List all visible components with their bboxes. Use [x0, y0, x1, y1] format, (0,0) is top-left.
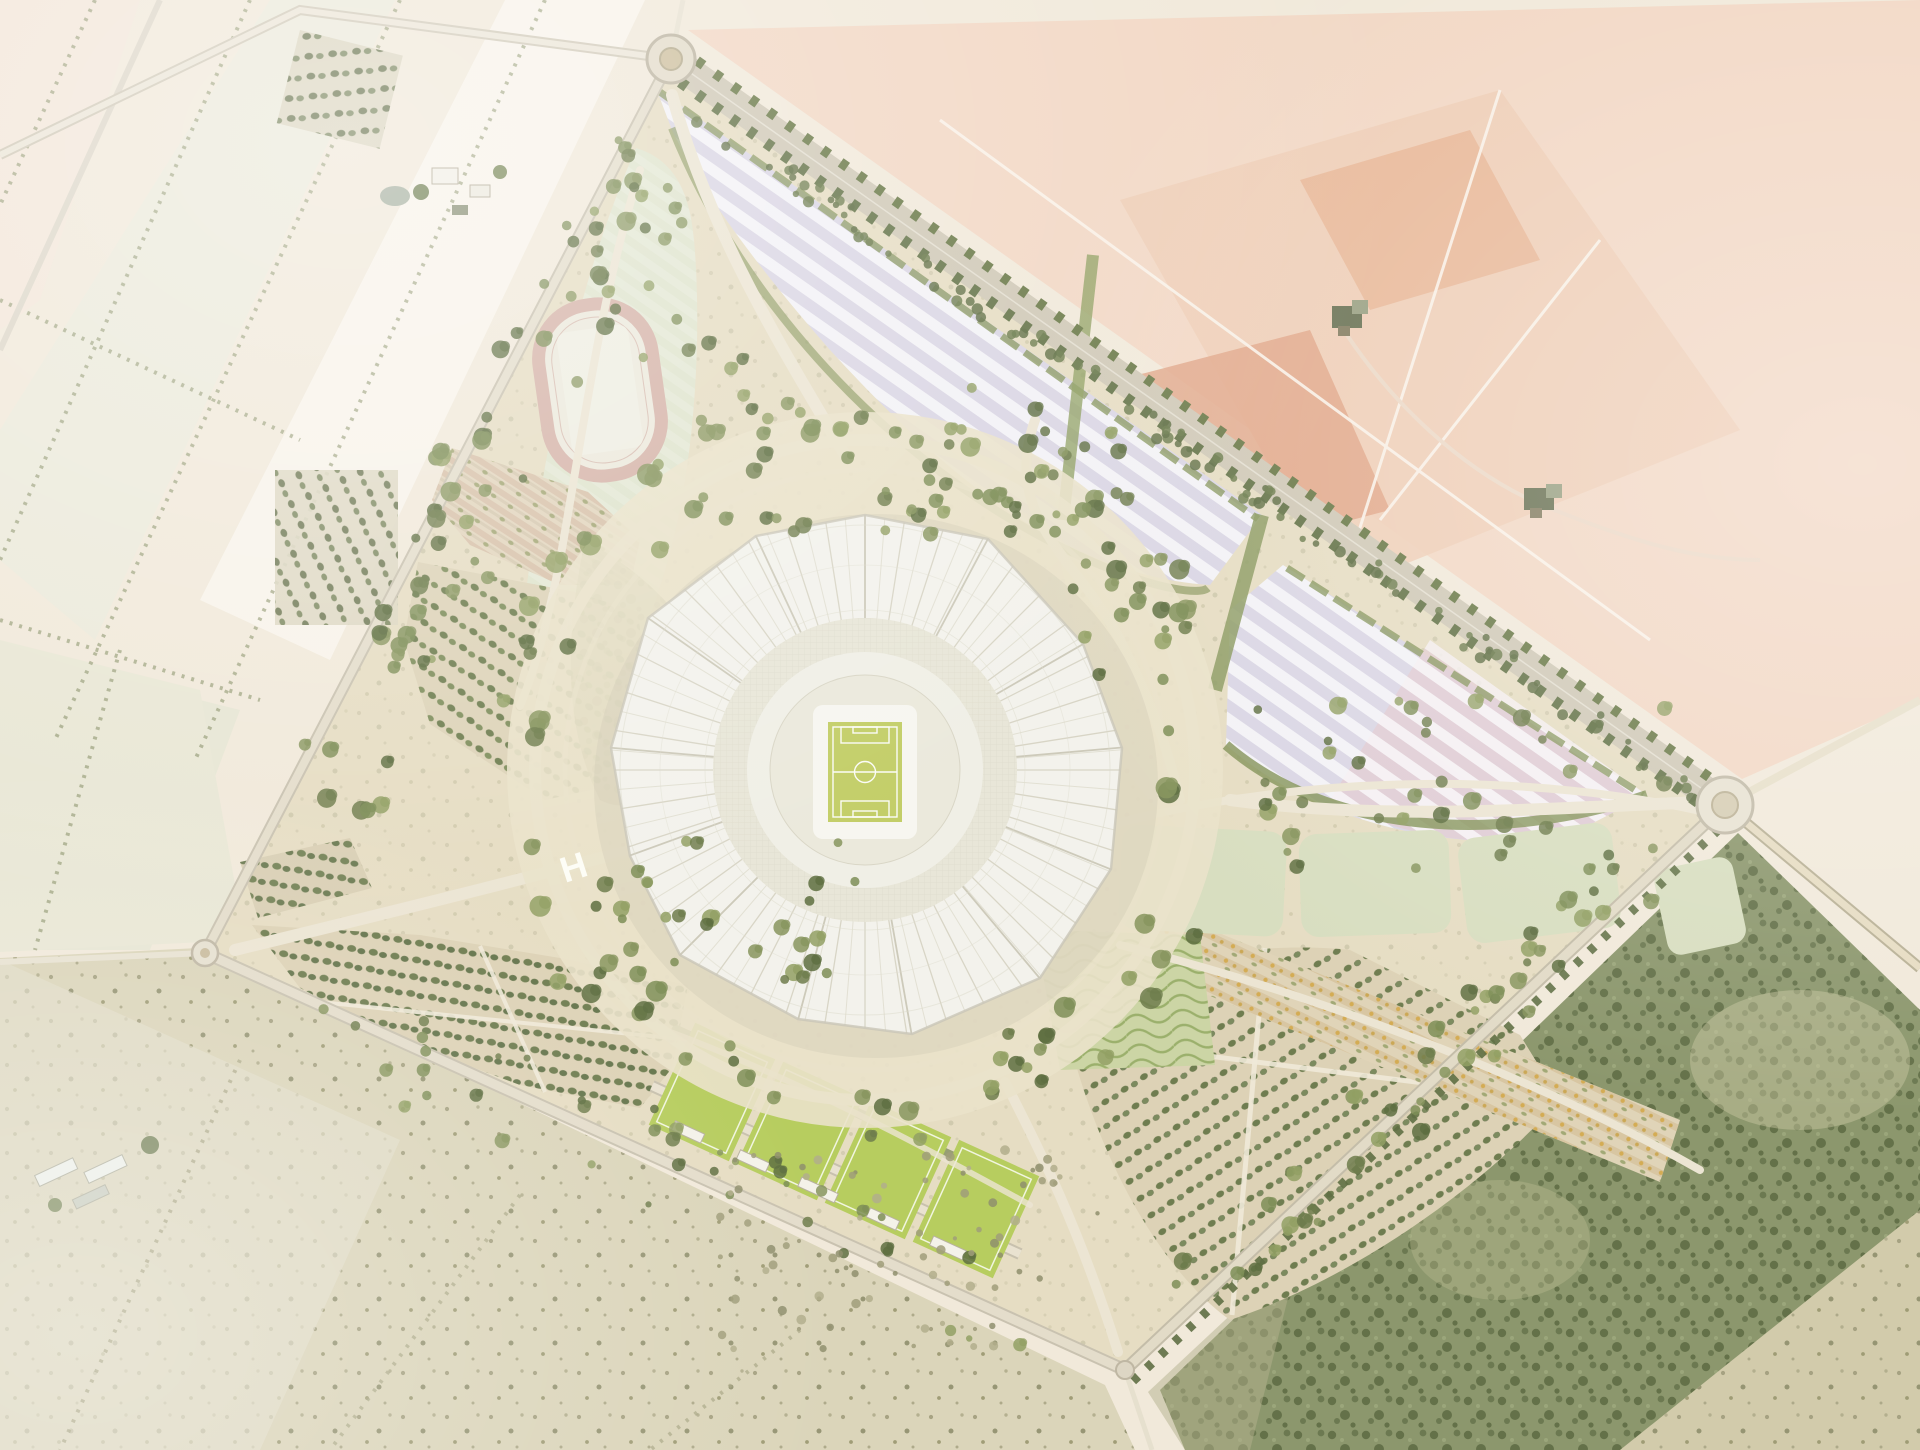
masterplan-rendering: Aerial masterplan rendering of a stadium… [0, 0, 1920, 1450]
wash-overlay-sw [0, 0, 1920, 1450]
